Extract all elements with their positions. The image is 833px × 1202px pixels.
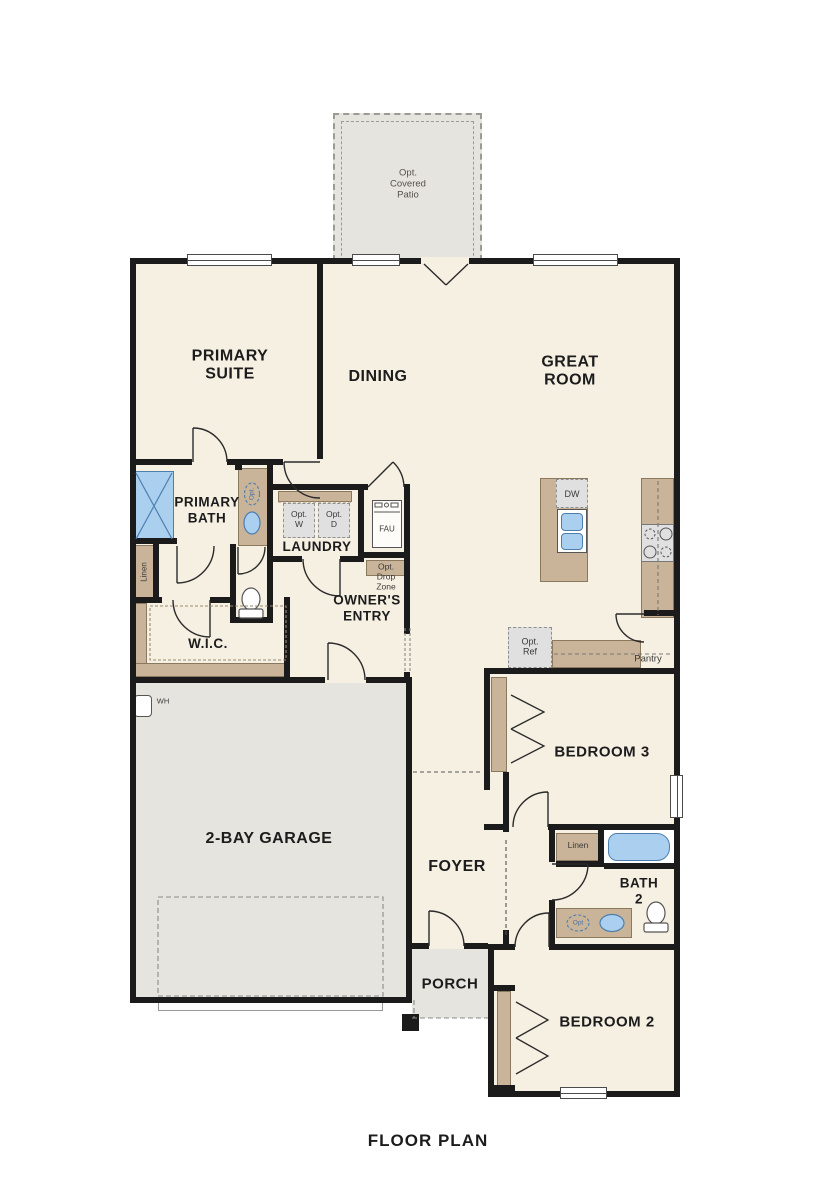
- room-label-wic: W.I.C.: [188, 636, 228, 652]
- wall: [273, 484, 368, 490]
- window-primary-suite: [187, 254, 272, 266]
- wall: [404, 484, 410, 634]
- wall: [358, 552, 410, 558]
- island-sink-bowl-bottom: [561, 533, 583, 550]
- linen-primary-label: Linen: [139, 562, 148, 582]
- wall: [406, 683, 412, 997]
- opt-dryer-label: Opt. D: [326, 510, 342, 530]
- wall: [503, 930, 509, 944]
- wall: [674, 258, 680, 1097]
- wic-shelf-bottom: [133, 663, 290, 677]
- wall: [598, 824, 604, 867]
- wall: [267, 556, 302, 562]
- wall: [549, 944, 680, 950]
- room-label-primary-suite: PRIMARY SUITE: [192, 348, 269, 385]
- water-heater: [134, 695, 152, 717]
- wall: [604, 863, 674, 869]
- wall: [358, 484, 364, 558]
- window-dining: [352, 254, 400, 266]
- opt-sink-bath2-label: Opt: [573, 919, 583, 926]
- fau-label: FAU: [379, 524, 395, 533]
- wall: [484, 668, 490, 790]
- wall: [210, 597, 236, 603]
- wall: [130, 677, 136, 1003]
- room-label-pantry: Pantry: [634, 655, 661, 666]
- wall: [406, 943, 429, 949]
- cooktop-box: [641, 524, 674, 562]
- wall: [644, 610, 674, 616]
- bedroom2-closet-shelf: [497, 991, 511, 1087]
- room-label-primary-bath: PRIMARY BATH: [174, 494, 239, 525]
- floor-plan-canvas: Opt. Covered Patio PRIMARY SUITE DINING …: [0, 0, 833, 1202]
- tub-bath2: [608, 833, 670, 861]
- wall: [130, 677, 325, 683]
- wall: [317, 258, 323, 459]
- window-bedroom2: [560, 1087, 607, 1099]
- wall: [130, 459, 192, 465]
- window-bedroom3: [670, 775, 683, 818]
- room-label-bedroom3: BEDROOM 3: [554, 743, 649, 760]
- wall: [549, 900, 555, 944]
- room-label-bedroom2: BEDROOM 2: [559, 1013, 654, 1030]
- wall: [503, 772, 509, 832]
- wall: [488, 944, 494, 1097]
- room-label-patio: Opt. Covered Patio: [390, 169, 426, 202]
- wall: [235, 459, 242, 470]
- bedroom3-closet-shelf: [491, 677, 507, 772]
- wall: [548, 824, 680, 830]
- wall: [484, 668, 680, 674]
- wall: [230, 617, 273, 623]
- room-label-porch: PORCH: [422, 975, 479, 992]
- water-heater-label: WH: [157, 698, 170, 707]
- room-label-garage: 2-BAY GARAGE: [206, 830, 333, 848]
- wall: [284, 597, 290, 677]
- window-great-room: [533, 254, 618, 266]
- island-sink-bowl-top: [561, 513, 583, 531]
- laundry-upper-cabinet: [278, 491, 352, 502]
- linen-bath2-label: Linen: [568, 841, 589, 851]
- room-label-foyer: FOYER: [428, 858, 486, 876]
- opt-sink-primary-label: Opt.: [248, 488, 255, 500]
- kitchen-counter-lower: [552, 640, 641, 668]
- porch-column: [402, 1014, 419, 1031]
- room-label-great-room: GREAT ROOM: [541, 354, 598, 391]
- room-label-owners-entry: OWNER'S ENTRY: [333, 592, 400, 623]
- primary-bath-vanity: [238, 468, 268, 546]
- wall: [153, 544, 159, 603]
- patio-door-gap: [421, 257, 469, 266]
- wall: [494, 985, 515, 991]
- wall: [130, 997, 412, 1003]
- room-label-dining: DINING: [349, 368, 408, 386]
- opt-refrigerator-label: Opt. Ref: [521, 637, 538, 658]
- dishwasher-label: DW: [565, 489, 580, 499]
- wall: [549, 824, 555, 862]
- wall: [230, 544, 236, 623]
- room-label-laundry: LAUNDRY: [283, 539, 352, 555]
- opt-washer-label: Opt. W: [291, 510, 307, 530]
- bath2-vanity: [556, 908, 632, 938]
- wall: [130, 258, 136, 683]
- wall: [464, 943, 488, 949]
- room-label-bath2: BATH 2: [620, 875, 659, 906]
- wall: [494, 1085, 515, 1091]
- opt-drop-zone-label: Opt. Drop Zone: [376, 562, 395, 591]
- wall: [556, 861, 604, 867]
- shower-primary: [134, 471, 174, 541]
- drawing-title: FLOOR PLAN: [368, 1131, 489, 1151]
